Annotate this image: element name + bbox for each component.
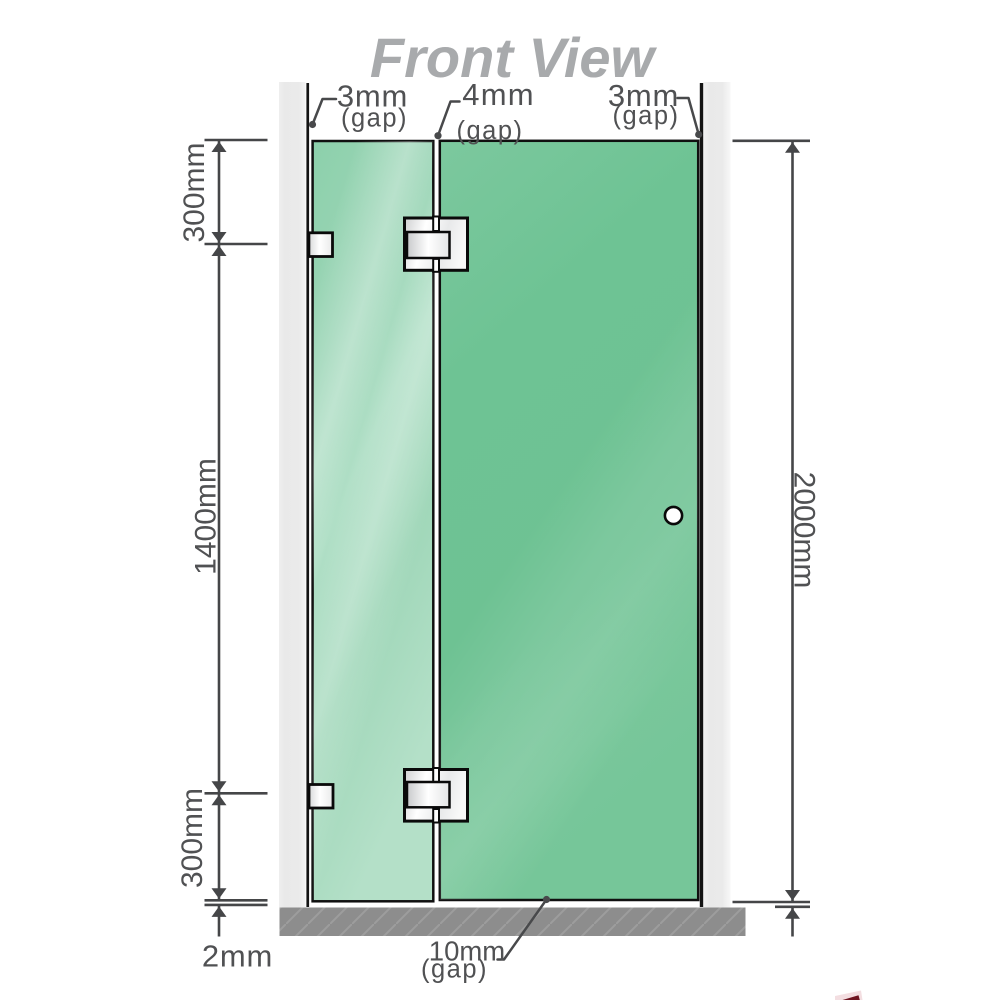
svg-text:(gap): (gap) xyxy=(612,102,679,130)
svg-text:1400mm: 1400mm xyxy=(190,458,223,575)
svg-text:Front View: Front View xyxy=(370,26,658,89)
svg-text:2mm: 2mm xyxy=(202,939,273,974)
svg-text:300mm: 300mm xyxy=(178,142,211,242)
svg-text:(gap): (gap) xyxy=(456,117,523,145)
svg-text:300mm: 300mm xyxy=(176,788,209,888)
svg-text:(gap): (gap) xyxy=(341,105,408,133)
svg-text:(gap): (gap) xyxy=(421,956,488,984)
svg-text:2000mm: 2000mm xyxy=(788,472,821,589)
